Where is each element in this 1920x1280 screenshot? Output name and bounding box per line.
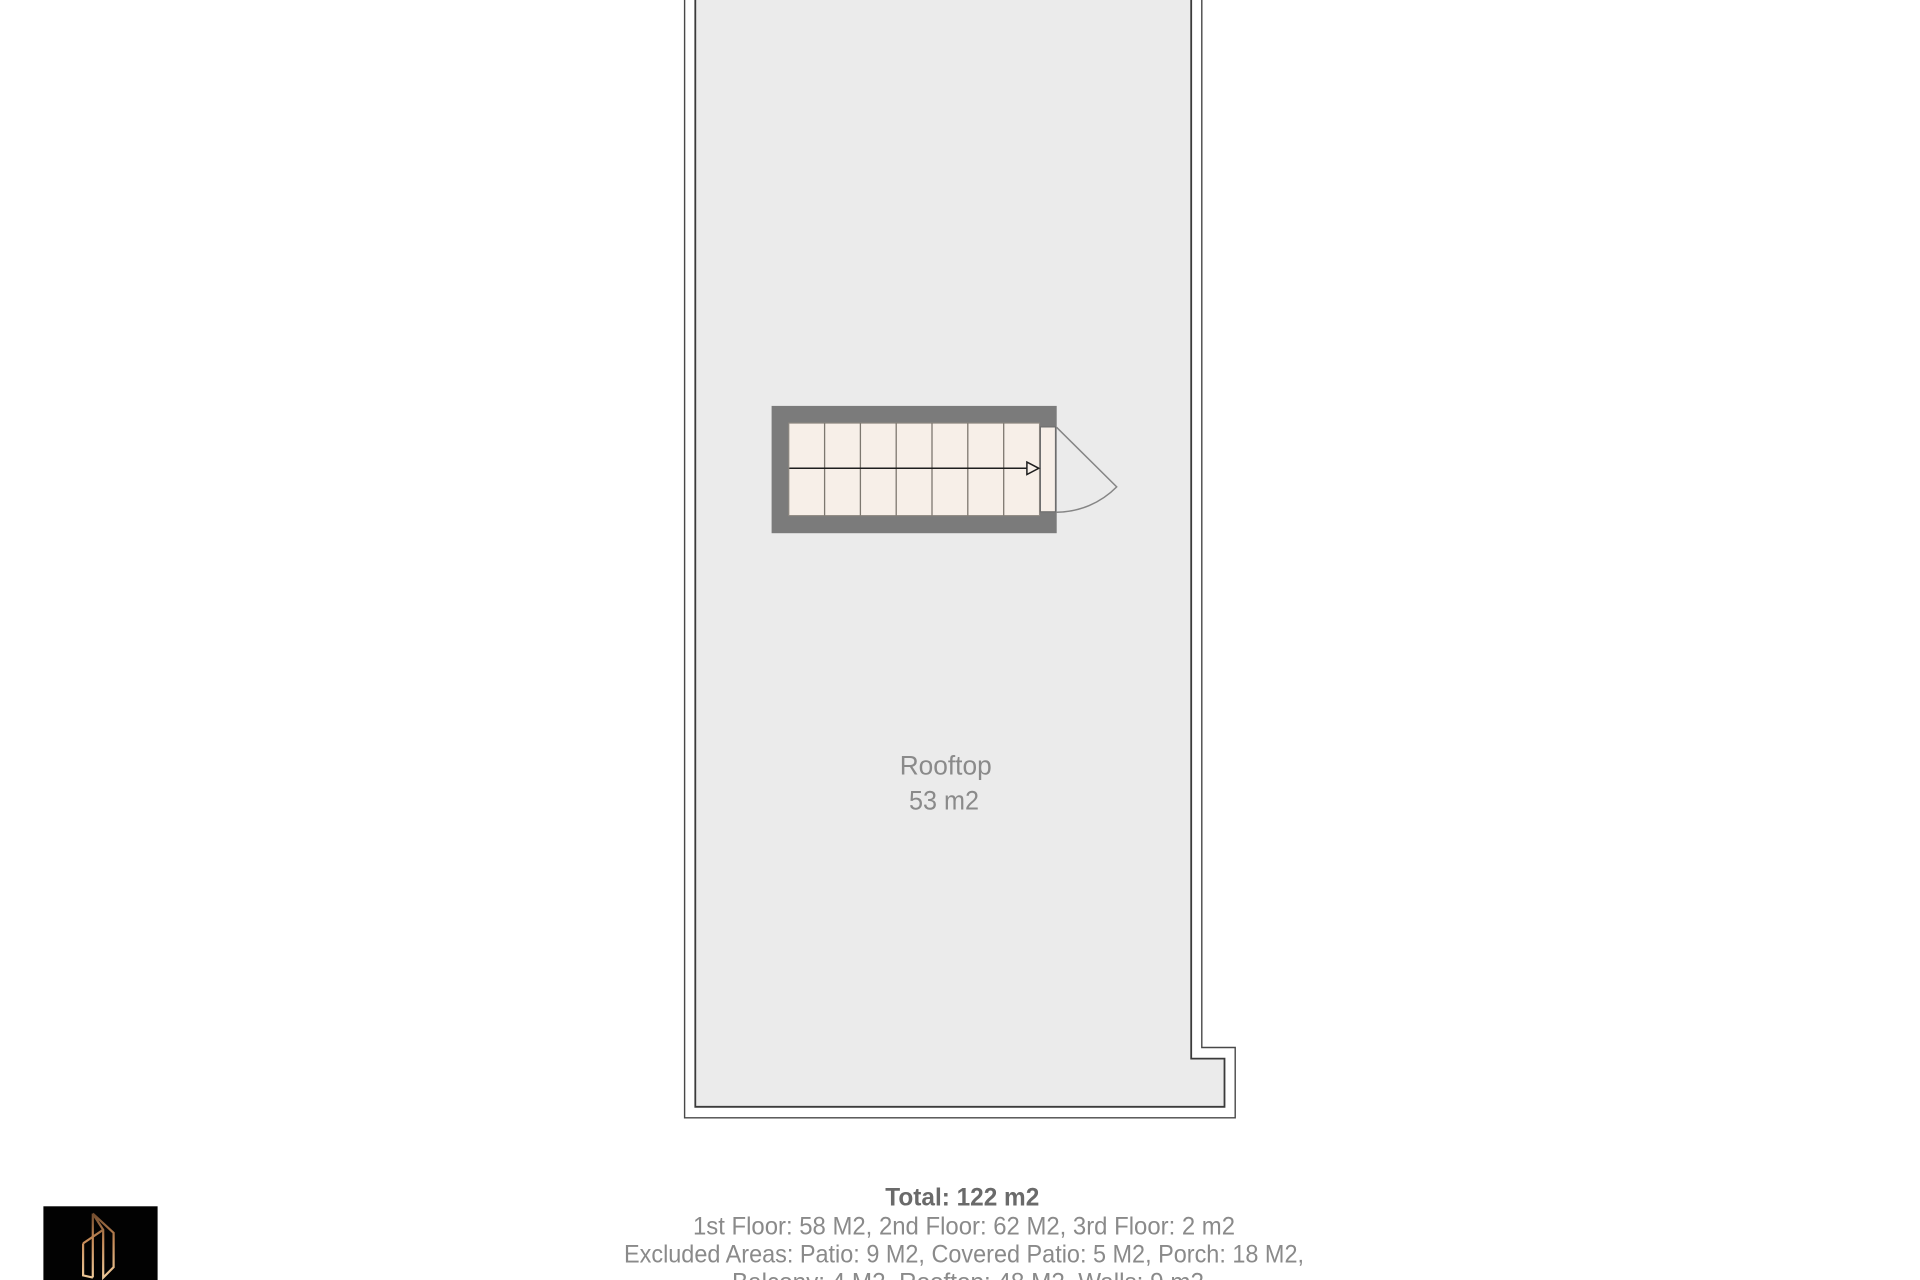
svg-text:Balcony: 4 M2, Rooftop: 48 M2,: Balcony: 4 M2, Rooftop: 48 M2, Walls: 9 … <box>732 1269 1204 1280</box>
svg-text:Rooftop: Rooftop <box>900 750 992 780</box>
svg-text:Total: 122 m2: Total: 122 m2 <box>885 1183 1039 1211</box>
svg-text:53 m2: 53 m2 <box>909 785 979 815</box>
svg-text:Excluded Areas: Patio: 9 M2, C: Excluded Areas: Patio: 9 M2, Covered Pat… <box>624 1241 1304 1269</box>
svg-text:1st Floor: 58 M2, 2nd Floor: 6: 1st Floor: 58 M2, 2nd Floor: 62 M2, 3rd … <box>693 1213 1235 1241</box>
